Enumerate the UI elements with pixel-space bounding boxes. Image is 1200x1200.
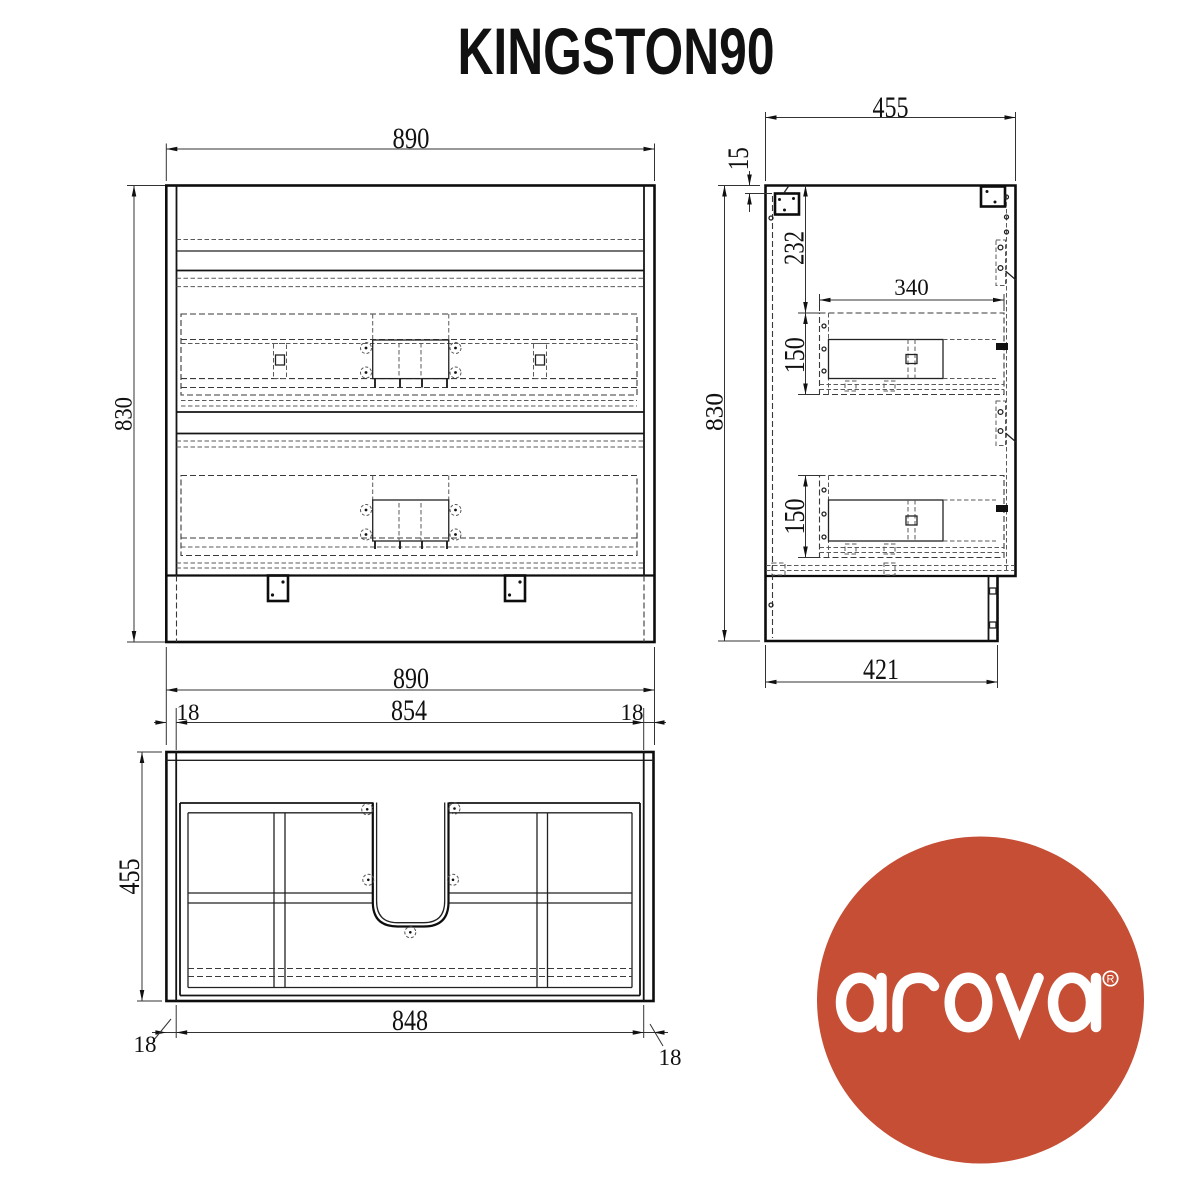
svg-text:455: 455 bbox=[873, 92, 909, 124]
svg-text:232: 232 bbox=[780, 231, 811, 265]
svg-text:150: 150 bbox=[780, 337, 811, 373]
svg-text:890: 890 bbox=[393, 122, 430, 155]
svg-text:18: 18 bbox=[177, 700, 200, 725]
svg-text:455: 455 bbox=[114, 859, 146, 895]
svg-text:830: 830 bbox=[702, 393, 729, 431]
svg-text:18: 18 bbox=[659, 1045, 682, 1070]
svg-text:830: 830 bbox=[111, 397, 138, 431]
svg-text:421: 421 bbox=[863, 653, 899, 686]
svg-text:340: 340 bbox=[894, 275, 929, 300]
svg-text:KINGSTON90: KINGSTON90 bbox=[458, 14, 775, 88]
svg-text:18: 18 bbox=[134, 1032, 157, 1057]
svg-text:848: 848 bbox=[392, 1004, 428, 1037]
svg-text:R: R bbox=[1107, 974, 1115, 986]
svg-text:150: 150 bbox=[780, 499, 811, 535]
svg-text:854: 854 bbox=[391, 694, 427, 727]
svg-text:18: 18 bbox=[621, 700, 644, 725]
svg-text:890: 890 bbox=[393, 662, 429, 695]
svg-text:15: 15 bbox=[722, 147, 755, 170]
